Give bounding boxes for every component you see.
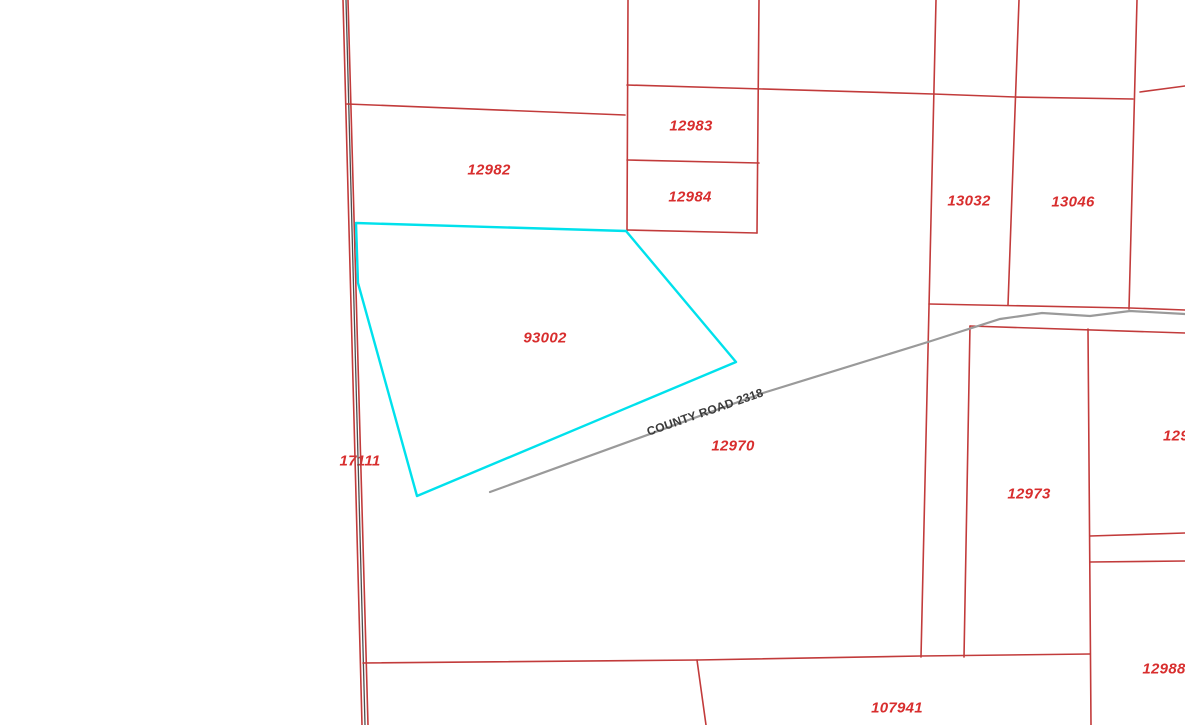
parcel-label-93002: 93002	[523, 330, 566, 347]
map-canvas[interactable]: 1298212983129841303213046930021711112970…	[0, 0, 1185, 725]
parcel-label-129: 129	[1163, 428, 1185, 445]
parcel-label-13046: 13046	[1051, 194, 1094, 211]
parcel-label-12970: 12970	[711, 438, 754, 455]
parcel-labels-layer: 1298212983129841303213046930021711112970…	[0, 0, 1185, 725]
parcel-label-12988: 12988	[1142, 661, 1185, 678]
parcel-label-12973: 12973	[1007, 486, 1050, 503]
parcel-label-12983: 12983	[669, 118, 712, 135]
parcel-label-12984: 12984	[668, 189, 711, 206]
parcel-label-13032: 13032	[947, 193, 990, 210]
parcel-label-12982: 12982	[467, 162, 510, 179]
parcel-label-107941: 107941	[871, 700, 923, 717]
parcel-label-17111: 17111	[340, 453, 381, 470]
